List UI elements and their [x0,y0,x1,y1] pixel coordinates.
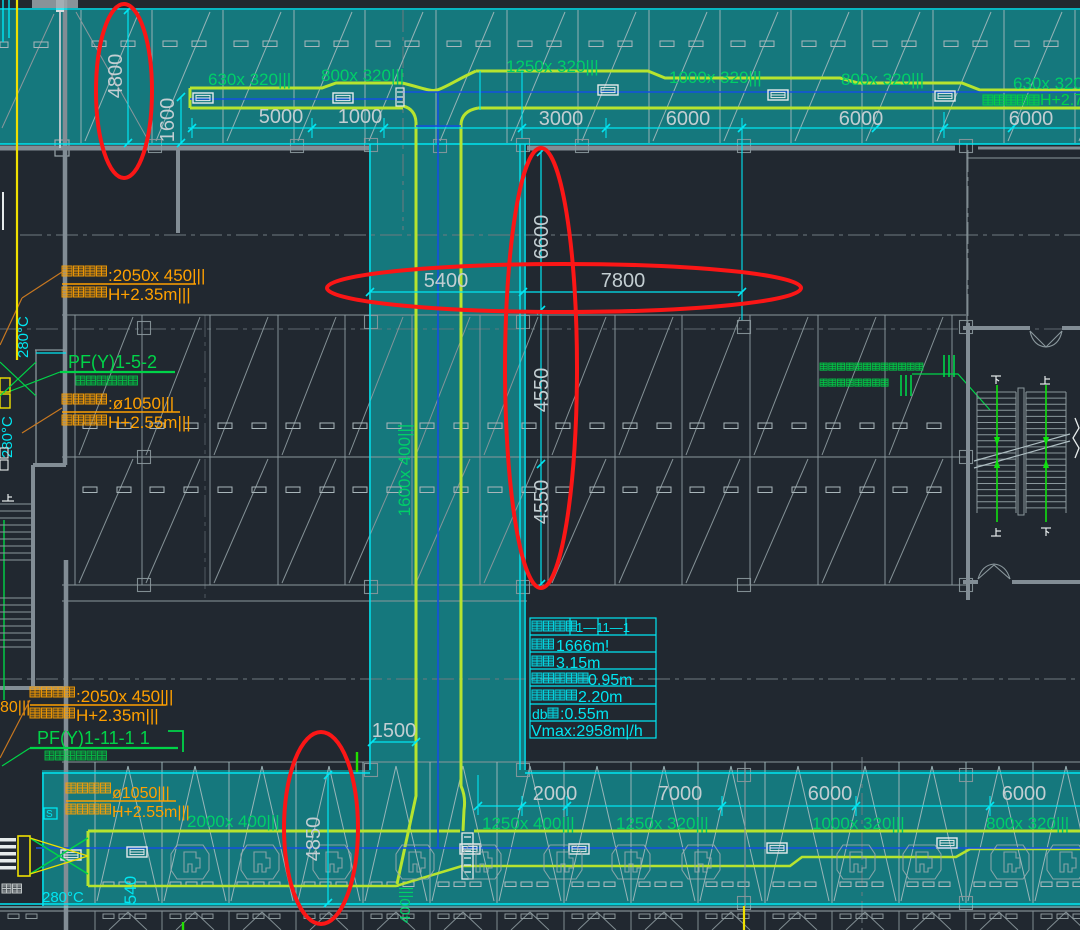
svg-text:400|||: 400||| [397,887,414,924]
svg-text:4550: 4550 [531,480,553,525]
svg-text:1600: 1600 [157,98,179,143]
svg-text:6000: 6000 [1009,108,1054,130]
svg-text:6000: 6000 [1002,783,1047,805]
svg-text:4550: 4550 [531,368,553,413]
svg-text:4800: 4800 [105,54,127,99]
svg-text:800x 320|||: 800x 320||| [986,814,1069,833]
svg-text:H+2.55m|||: H+2.55m||| [108,413,191,432]
svg-text:6000: 6000 [839,108,884,130]
svg-text:H+2.55m|||: H+2.55m||| [112,804,190,821]
svg-text:1250x 320|||: 1250x 320||| [616,814,709,833]
svg-text::0.55m: :0.55m [560,706,609,723]
svg-text:ø1050|||: ø1050||| [112,785,170,802]
svg-text:1666m!: 1666m! [556,638,609,655]
svg-text::ø1050|||: :ø1050||| [108,394,174,413]
svg-text:2000: 2000 [533,783,578,805]
svg-text:3.15m: 3.15m [556,655,600,672]
svg-text:6000: 6000 [666,108,711,130]
svg-text:4850: 4850 [303,817,325,862]
svg-text:PF(Y)1-5-2: PF(Y)1-5-2 [68,352,157,372]
svg-text:1600x 400|||: 1600x 400||| [395,424,414,517]
svg-text:5400: 5400 [424,270,469,292]
svg-text:H+2.35m|||: H+2.35m||| [76,706,159,725]
svg-text:6600: 6600 [531,215,553,260]
svg-text:2.20m: 2.20m [578,689,622,706]
svg-text:3000: 3000 [539,108,584,130]
svg-text:630x 320|||: 630x 320||| [208,70,291,89]
svg-text:0.95m: 0.95m [588,672,632,689]
svg-text:H+2.7: H+2.7 [1040,92,1080,109]
svg-text:1000x 320|||: 1000x 320||| [812,814,905,833]
svg-text:800x 320|||: 800x 320||| [841,70,924,89]
svg-text:1250x 400|||: 1250x 400||| [482,814,575,833]
svg-text:H+2.35m|||: H+2.35m||| [108,285,191,304]
svg-text:PF(Y)1-11-1 1: PF(Y)1-11-1 1 [37,728,150,748]
svg-text:630x 320: 630x 320 [1013,74,1080,93]
svg-text:7000: 7000 [658,783,703,805]
svg-text:S: S [46,809,53,820]
svg-text:6000: 6000 [808,783,853,805]
svg-text:800x 320|||: 800x 320||| [321,66,404,85]
svg-text:2000x 400|||: 2000x 400||| [187,812,280,831]
svg-text:db: db [532,706,548,722]
svg-text:1500: 1500 [372,720,417,742]
svg-text:1000x 320|||: 1000x 320||| [669,68,762,87]
svg-text:7800: 7800 [601,270,646,292]
svg-text:280°C: 280°C [42,889,84,906]
svg-text:540: 540 [121,876,140,904]
svg-text:1000: 1000 [338,106,383,128]
svg-text::2050x 450|||: :2050x 450||| [76,687,173,706]
svg-text:1—11—1: 1—11—1 [576,620,630,635]
svg-text:5000: 5000 [259,106,304,128]
svg-text:Vmax:2958m|/h: Vmax:2958m|/h [531,723,643,740]
svg-text::2050x 450|||: :2050x 450||| [108,266,205,285]
svg-text:1250x 320|||: 1250x 320||| [506,57,599,76]
